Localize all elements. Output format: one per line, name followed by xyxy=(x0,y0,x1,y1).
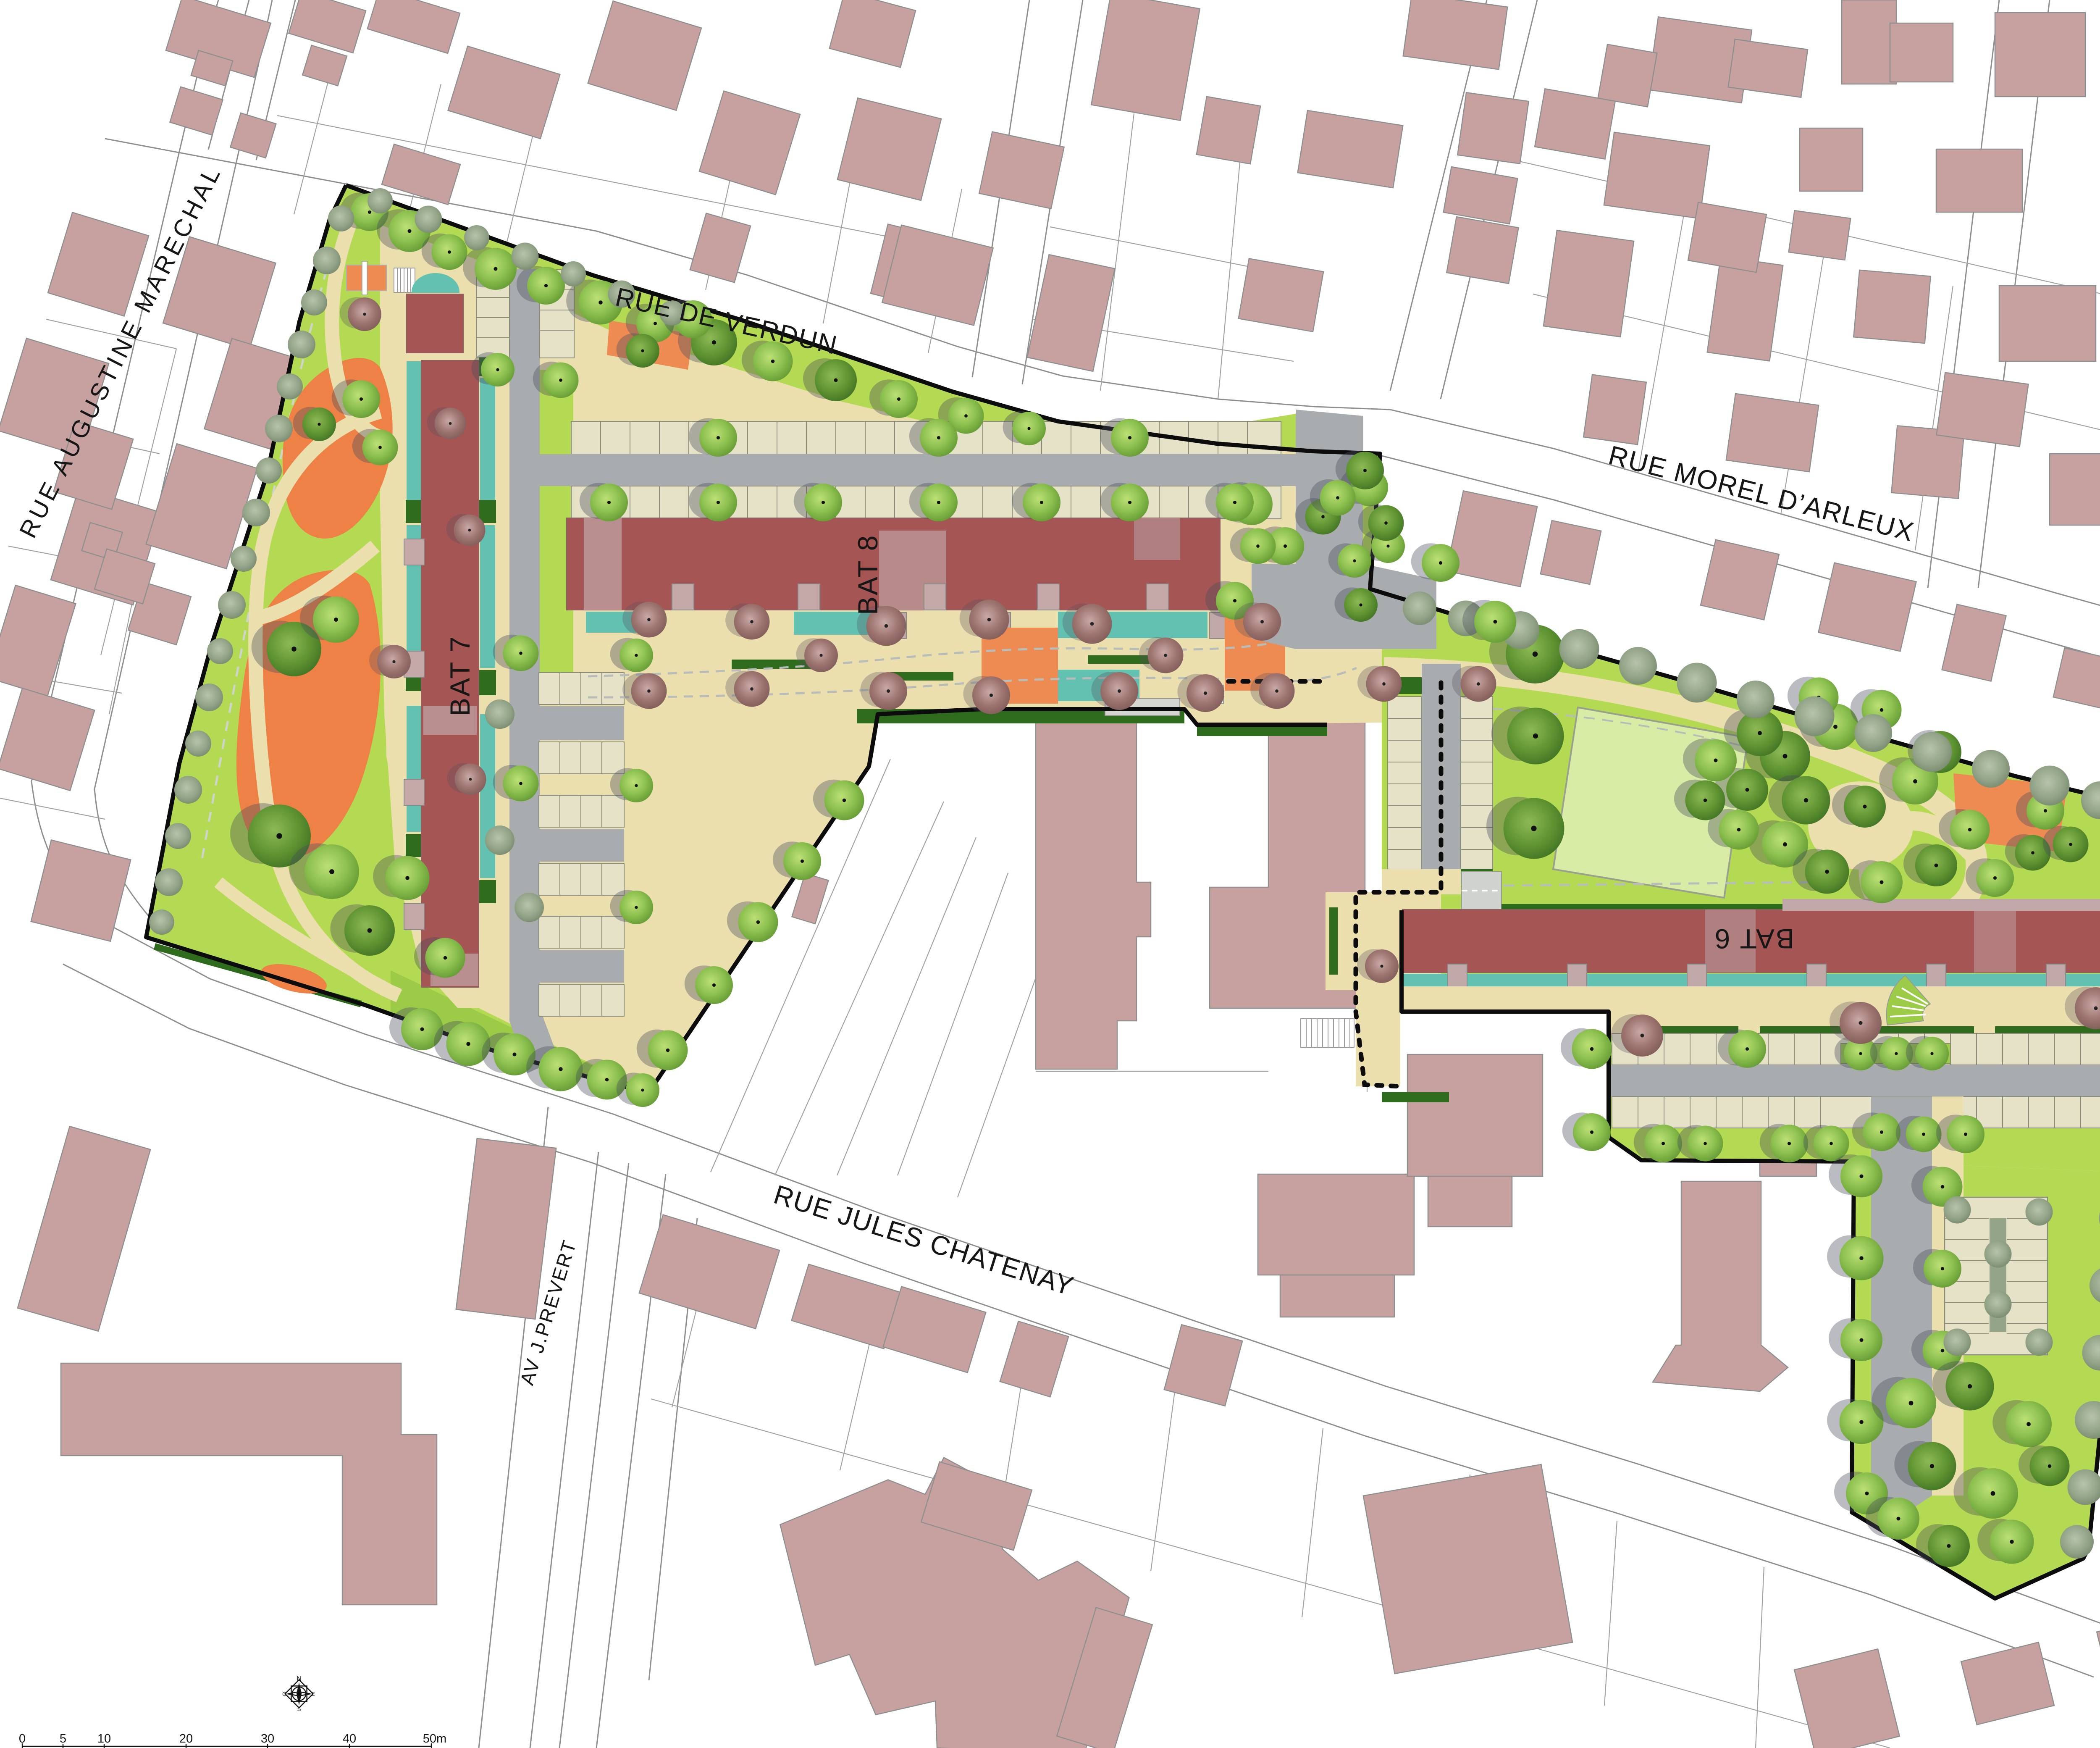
svg-text:20: 20 xyxy=(179,1732,193,1745)
svg-text:BAT 7: BAT 7 xyxy=(444,636,475,716)
svg-text:50m: 50m xyxy=(423,1732,446,1745)
svg-text:N: N xyxy=(297,1675,302,1682)
svg-text:E: E xyxy=(311,1691,315,1697)
svg-text:S: S xyxy=(297,1706,301,1712)
svg-text:30: 30 xyxy=(261,1732,274,1745)
svg-text:40: 40 xyxy=(343,1732,356,1745)
svg-text:5: 5 xyxy=(60,1732,66,1745)
svg-text:BAT 6: BAT 6 xyxy=(1714,923,1794,954)
svg-text:10: 10 xyxy=(97,1732,111,1745)
svg-text:O: O xyxy=(282,1691,287,1697)
svg-text:BAT 8: BAT 8 xyxy=(852,534,883,615)
